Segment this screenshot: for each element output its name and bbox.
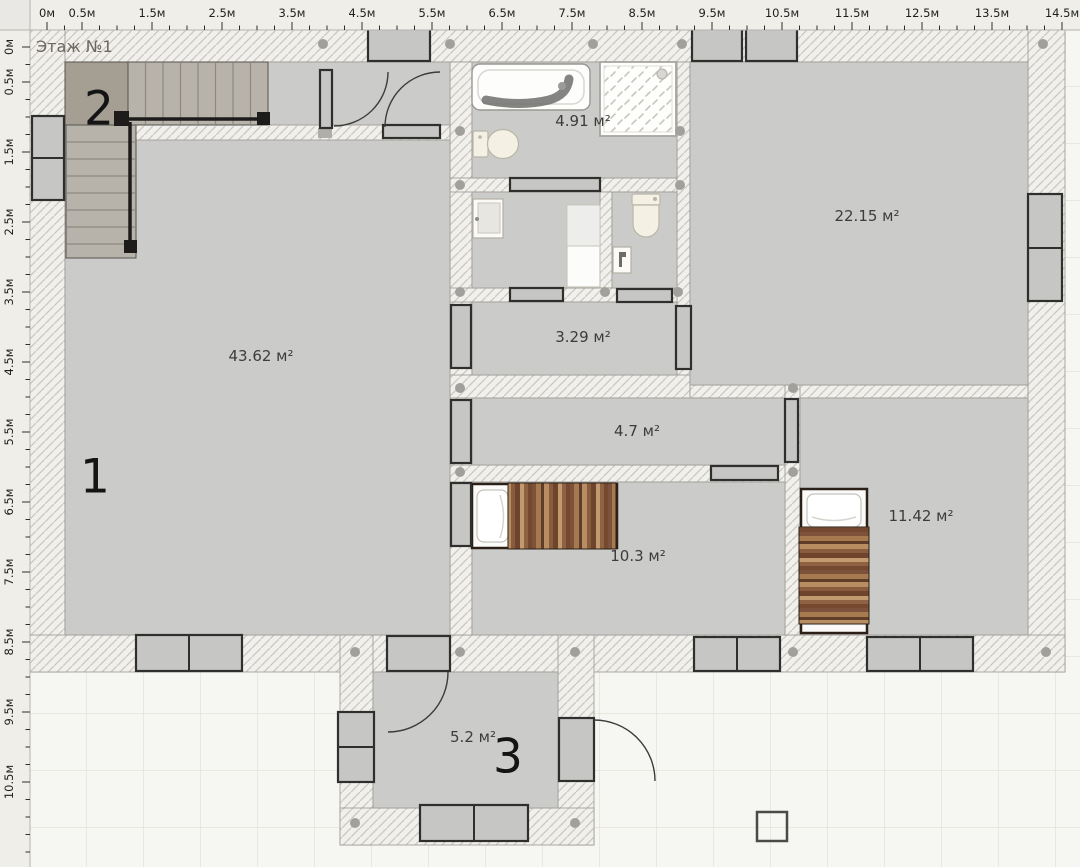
door-entry-exterior[interactable] <box>559 718 594 781</box>
ruler-top-label: 0.5м <box>69 6 96 20</box>
ruler-top-label: 4.5м <box>349 6 376 20</box>
ruler-top-label: 7.5м <box>559 6 586 20</box>
ruler-left-label: 7.5м <box>2 559 16 586</box>
door-vestibule-left-leaf[interactable] <box>320 70 332 128</box>
room-area-label-bedroom-right: 11.42 м² <box>888 507 953 525</box>
wall-node[interactable] <box>455 180 465 190</box>
wall-node[interactable] <box>455 287 465 297</box>
door-bathroom-wide[interactable] <box>510 178 600 191</box>
door-hall-bedroom-large[interactable] <box>676 306 691 369</box>
wall-node[interactable] <box>677 39 687 49</box>
wall-bedroomlarge-south[interactable] <box>690 385 1028 398</box>
ruler-left-label: 0м <box>2 39 16 55</box>
ruler-top-label: 1.5м <box>139 6 166 20</box>
room-area-label-bedroom-large: 22.15 м² <box>834 207 899 225</box>
ruler-top-label: 0м <box>39 6 55 20</box>
wall-node[interactable] <box>788 647 798 657</box>
ruler-top-label: 3.5м <box>279 6 306 20</box>
ruler-top-label: 10.5м <box>765 6 799 20</box>
flush-button-icon <box>653 197 657 201</box>
wall-exterior-right[interactable] <box>1028 30 1065 672</box>
door-hall-wc-left[interactable] <box>510 288 563 301</box>
floor-title: Этаж №1 <box>36 37 113 56</box>
room-area-label-living-room: 43.62 м² <box>228 347 293 365</box>
wall-node[interactable] <box>455 647 465 657</box>
toilet-bathroom[interactable] <box>473 130 519 159</box>
marker-3[interactable]: 3 <box>493 730 523 785</box>
wall-node[interactable] <box>350 647 360 657</box>
marker-2[interactable]: 2 <box>84 82 114 137</box>
wall-node[interactable] <box>570 818 580 828</box>
faucet-icon <box>475 217 479 221</box>
ruler-top-label: 14.5м <box>1045 6 1079 20</box>
room-area-label-bedroom-left: 10.3 м² <box>610 547 666 565</box>
wall-node[interactable] <box>455 467 465 477</box>
window-top-bedroom-a[interactable] <box>692 29 742 61</box>
ruler-left-label: 3.5м <box>2 279 16 306</box>
ruler-top-label: 2.5м <box>209 6 236 20</box>
wall-node[interactable] <box>570 647 580 657</box>
marker-1[interactable]: 1 <box>80 450 110 505</box>
wall-node[interactable] <box>455 126 465 136</box>
blanket <box>508 483 616 549</box>
ruler-top-label: 5.5м <box>419 6 446 20</box>
wall-exterior-top[interactable] <box>30 30 1065 62</box>
wall-node[interactable] <box>445 39 455 49</box>
ruler-top-label: 12.5м <box>905 6 939 20</box>
room-area-label-corridor: 4.7 м² <box>614 422 660 440</box>
door-living-bedroom-left[interactable] <box>451 483 471 546</box>
stairs-run-vertical[interactable] <box>66 125 136 258</box>
ruler-top-label: 13.5м <box>975 6 1009 20</box>
ruler-corner <box>0 0 30 30</box>
wall-node[interactable] <box>350 818 360 828</box>
wall-hall-corridor[interactable] <box>450 375 690 398</box>
door-vestibule-living[interactable] <box>383 125 440 138</box>
ruler-left-label: 2.5м <box>2 209 16 236</box>
room-area-label-hall-small: 3.29 м² <box>555 328 611 346</box>
door-living-corridor[interactable] <box>451 400 471 463</box>
wall-node[interactable] <box>588 39 598 49</box>
wall-node[interactable] <box>788 467 798 477</box>
bed-right[interactable] <box>799 489 869 633</box>
ruler-left-label: 5.5м <box>2 419 16 446</box>
ruler-left-label: 4.5м <box>2 349 16 376</box>
wall-node[interactable] <box>1038 39 1048 49</box>
stairs-rail-bottom-cap <box>124 240 137 253</box>
washbasin-right-wc[interactable] <box>613 247 631 273</box>
blanket <box>799 527 869 624</box>
ruler-left-label: 1.5м <box>2 139 16 166</box>
bed-left[interactable] <box>472 483 617 549</box>
door-living-entry[interactable] <box>387 636 450 671</box>
wall-node[interactable] <box>600 287 610 297</box>
wall-node[interactable] <box>675 180 685 190</box>
ruler-top-label: 9.5м <box>699 6 726 20</box>
door-corridor-bedroom-right[interactable] <box>785 399 798 462</box>
ruler-top-label: 11.5м <box>835 6 869 20</box>
bathtub[interactable] <box>472 64 590 110</box>
shower-drain-icon <box>657 69 667 79</box>
ruler-left-label: 6.5м <box>2 489 16 516</box>
wall-node[interactable] <box>318 39 328 49</box>
wall-node[interactable] <box>673 287 683 297</box>
shower-tray[interactable] <box>600 62 676 136</box>
door-hall-wc-right[interactable] <box>617 289 672 302</box>
room-area-label-bathroom: 4.91 м² <box>555 112 611 130</box>
toilet-right-wc[interactable] <box>632 194 660 237</box>
window-top-vestibule[interactable] <box>368 27 430 61</box>
window-top-bedroom-b[interactable] <box>746 29 797 61</box>
wall-node[interactable] <box>675 126 685 136</box>
ruler-top-label: 8.5м <box>629 6 656 20</box>
room-area-label-entry-hall: 5.2 м² <box>450 728 496 746</box>
stairs-rail-end-cap <box>257 112 270 125</box>
pillow <box>807 494 861 527</box>
wall-wc-divider[interactable] <box>600 192 612 288</box>
bathtub-drain-icon <box>558 82 566 90</box>
ruler-left-label: 8.5м <box>2 629 16 656</box>
ruler-top-label: 6.5м <box>489 6 516 20</box>
ruler-left-label: 9.5м <box>2 699 16 726</box>
ruler-left-label: 0.5м <box>2 69 16 96</box>
door-corridor-bedroom-left[interactable] <box>711 466 778 480</box>
ruler-left-label: 10.5м <box>2 765 16 799</box>
wall-node[interactable] <box>455 383 465 393</box>
shower-cabinet[interactable] <box>567 205 600 287</box>
flush-button-icon <box>478 135 482 139</box>
washbasin-left-wc[interactable] <box>473 199 503 238</box>
door-living-hall[interactable] <box>451 305 471 368</box>
door-threshold <box>318 128 332 138</box>
wall-node[interactable] <box>1041 647 1051 657</box>
floorplan-editor-canvas: 43.62 м²4.91 м²22.15 м²3.29 м²4.7 м²10.3… <box>0 0 1080 867</box>
stairs-rail-corner-cap <box>114 111 129 126</box>
wall-node[interactable] <box>788 383 798 393</box>
